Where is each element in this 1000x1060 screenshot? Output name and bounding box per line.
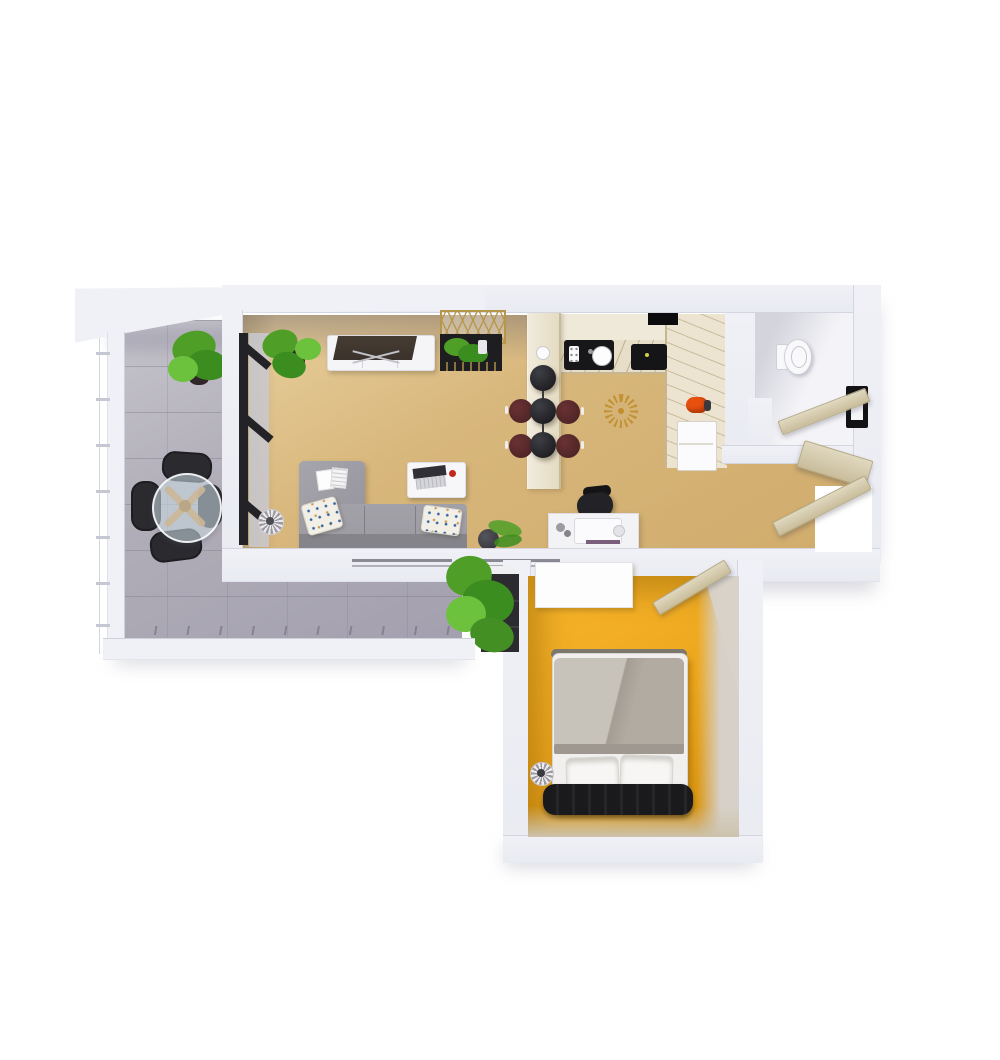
stool-arm (505, 406, 508, 414)
cooktop (631, 344, 667, 370)
sofa-seam (415, 506, 416, 534)
dresser (535, 562, 633, 608)
table-leg-hub (179, 500, 191, 512)
duvet (554, 658, 684, 754)
bedroom-south-wall (503, 835, 762, 863)
bedside-lamp-center (537, 769, 545, 777)
desk-machine-slot (586, 540, 620, 544)
potted-plant (295, 338, 321, 360)
bedroom-east-wall (737, 560, 763, 862)
sofa-seam (364, 506, 365, 534)
stool-arm (581, 441, 584, 449)
refrigerator (677, 421, 717, 471)
potted-plant (168, 356, 198, 382)
sink-faucet (588, 349, 593, 354)
duvet-fold (554, 744, 684, 754)
dish-tray (569, 346, 579, 362)
balcony-tile-dashes (125, 626, 465, 635)
railing-outer-line (99, 338, 100, 654)
shelf-slats (440, 362, 502, 371)
bar-bowl (536, 346, 550, 360)
sunburst-dot (618, 408, 624, 414)
sink-basin (592, 346, 612, 366)
stool-arm (581, 407, 584, 415)
balcony-railing-bottom (103, 638, 475, 660)
railing-tick (96, 444, 110, 447)
bar-stool (556, 434, 580, 458)
railing-tick (96, 352, 110, 355)
railing-tick (96, 398, 110, 401)
window-frame-bar (239, 333, 248, 545)
kettle-handle (704, 400, 711, 411)
bar-stool (556, 400, 580, 424)
window-track (352, 559, 452, 562)
shelf-bottles (478, 340, 487, 354)
pendant-lamp (530, 432, 556, 458)
railing-tick (96, 490, 110, 493)
throw-pillow (420, 504, 462, 536)
railing-tick (96, 536, 110, 539)
desk-vase (564, 530, 571, 537)
headboard (543, 784, 693, 815)
floor-lamp-center (266, 517, 274, 525)
balcony-railing-left (107, 332, 125, 658)
railing-tick (96, 582, 110, 585)
desk-machine-wheel (613, 525, 625, 537)
toilet-bowl-rim (791, 346, 807, 368)
railing-tick (96, 624, 110, 627)
stool-arm (505, 441, 508, 449)
pendant-lamp (530, 398, 556, 424)
cooktop-knob (645, 353, 649, 357)
flower-decor (449, 470, 456, 477)
refrigerator-seam (679, 443, 713, 445)
pendant-lamp (530, 365, 556, 391)
floor-plan-render (0, 0, 1000, 1060)
magazine (330, 467, 348, 489)
